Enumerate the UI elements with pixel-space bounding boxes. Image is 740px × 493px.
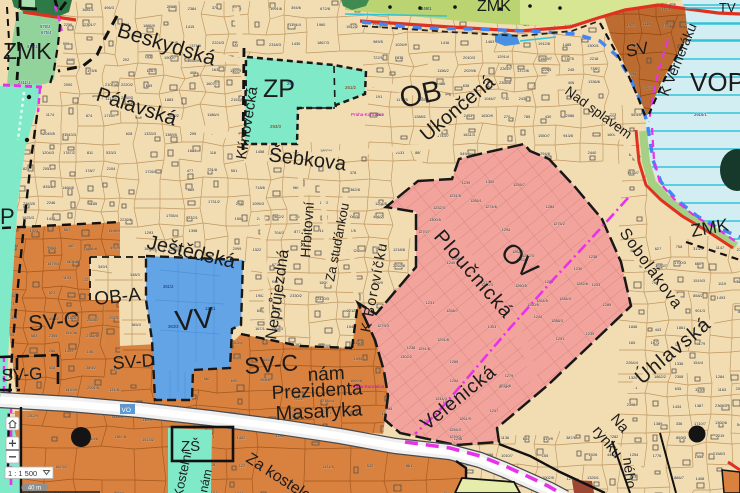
svg-text:1402: 1402 <box>237 435 246 440</box>
svg-text:154/4: 154/4 <box>693 360 704 365</box>
svg-text:ZMK: ZMK <box>477 0 511 15</box>
svg-text:490/9: 490/9 <box>110 245 120 250</box>
svg-text:2311/5: 2311/5 <box>86 333 98 338</box>
svg-text:2051: 2051 <box>43 166 52 171</box>
svg-text:349/1: 349/1 <box>98 264 108 269</box>
svg-text:2252/8: 2252/8 <box>393 263 405 268</box>
svg-text:1886/8: 1886/8 <box>85 246 97 251</box>
svg-text:2013/3: 2013/3 <box>109 315 121 320</box>
svg-text:293/3: 293/3 <box>270 124 282 129</box>
svg-text:2264/4: 2264/4 <box>626 360 639 365</box>
svg-text:1416: 1416 <box>441 40 450 45</box>
svg-text:191: 191 <box>376 94 383 99</box>
svg-text:1398: 1398 <box>189 228 198 233</box>
svg-text:1251/8: 1251/8 <box>418 347 430 351</box>
svg-text:1071: 1071 <box>651 340 660 345</box>
svg-text:1479/4: 1479/4 <box>47 261 60 266</box>
svg-text:835/5: 835/5 <box>43 184 53 189</box>
svg-text:718/6: 718/6 <box>255 185 265 190</box>
svg-text:163: 163 <box>212 67 219 72</box>
svg-text:1265: 1265 <box>450 360 458 364</box>
svg-text:1776: 1776 <box>653 453 662 458</box>
svg-text:562: 562 <box>204 376 211 381</box>
svg-text:SV: SV <box>624 38 650 61</box>
svg-text:2318/3: 2318/3 <box>269 42 281 47</box>
svg-text:1485: 1485 <box>563 42 572 47</box>
svg-text:2091/5: 2091/5 <box>87 385 99 390</box>
svg-text:Masaryka: Masaryka <box>275 398 364 425</box>
svg-text:2384: 2384 <box>188 6 197 11</box>
svg-text:1239/3: 1239/3 <box>449 435 461 439</box>
svg-text:111/5: 111/5 <box>642 21 651 26</box>
svg-text:711: 711 <box>503 96 509 101</box>
svg-text:519/9: 519/9 <box>543 436 553 441</box>
svg-text:989/5: 989/5 <box>373 39 383 44</box>
svg-text:1239: 1239 <box>586 332 594 336</box>
svg-text:178/7: 178/7 <box>85 168 95 173</box>
svg-text:245: 245 <box>568 67 575 72</box>
svg-text:1513/2: 1513/2 <box>142 437 154 442</box>
svg-text:382/8: 382/8 <box>350 187 360 192</box>
svg-text:1244: 1244 <box>534 315 542 319</box>
svg-text:758: 758 <box>676 244 683 249</box>
svg-text:1302/6: 1302/6 <box>715 420 727 425</box>
svg-text:628: 628 <box>126 131 133 136</box>
svg-text:2301/7: 2301/7 <box>84 22 96 27</box>
svg-text:1430: 1430 <box>292 41 301 46</box>
svg-text:1543/3: 1543/3 <box>64 132 76 137</box>
svg-text:1231: 1231 <box>426 301 434 305</box>
svg-text:272/6: 272/6 <box>662 23 672 28</box>
svg-text:2219: 2219 <box>716 433 725 438</box>
svg-text:1598/9: 1598/9 <box>108 228 120 233</box>
svg-text:858/2: 858/2 <box>693 293 703 298</box>
svg-text:2330/2: 2330/2 <box>290 293 302 298</box>
svg-text:1026: 1026 <box>589 452 598 457</box>
svg-text:1922: 1922 <box>627 22 636 27</box>
svg-text:811: 811 <box>87 150 93 155</box>
svg-text:1519/3: 1519/3 <box>693 278 705 283</box>
svg-text:1787/2: 1787/2 <box>63 150 75 155</box>
svg-text:193: 193 <box>145 54 152 59</box>
svg-text:859/3: 859/3 <box>676 435 686 440</box>
svg-text:394/6: 394/6 <box>291 5 301 10</box>
svg-text:SV-C: SV-C <box>27 307 80 336</box>
svg-text:336: 336 <box>676 421 683 426</box>
svg-text:704/3: 704/3 <box>274 230 284 235</box>
svg-text:1405/8: 1405/8 <box>66 259 78 264</box>
svg-text:1333/3: 1333/3 <box>144 131 156 136</box>
svg-text:1435/7: 1435/7 <box>627 170 639 175</box>
svg-text:666: 666 <box>67 57 74 62</box>
svg-text:672/8: 672/8 <box>320 6 330 11</box>
svg-text:1204/5: 1204/5 <box>375 201 387 206</box>
svg-text:1270/7: 1270/7 <box>418 230 430 234</box>
svg-text:1387: 1387 <box>695 403 704 408</box>
svg-text:1255/3: 1255/3 <box>449 428 461 432</box>
svg-text:496/3: 496/3 <box>104 5 114 10</box>
svg-text:690: 690 <box>231 378 238 383</box>
svg-text:1434: 1434 <box>47 216 56 221</box>
svg-text:1631/3: 1631/3 <box>463 132 475 137</box>
svg-text:1294: 1294 <box>502 228 510 232</box>
svg-text:1372/6: 1372/6 <box>517 68 529 73</box>
svg-text:477: 477 <box>187 168 194 173</box>
svg-text:1275/2: 1275/2 <box>553 222 565 226</box>
svg-text:2029/6: 2029/6 <box>464 68 476 73</box>
svg-text:1710/7: 1710/7 <box>694 421 706 426</box>
svg-text:131/8: 131/8 <box>109 387 119 392</box>
svg-text:TV: TV <box>719 0 736 15</box>
svg-text:1867/3: 1867/3 <box>317 40 329 45</box>
svg-text:1260/5: 1260/5 <box>515 284 527 288</box>
svg-text:1174: 1174 <box>46 112 55 117</box>
svg-text:1409: 1409 <box>65 348 74 353</box>
svg-text:1119: 1119 <box>718 281 726 286</box>
svg-text:295: 295 <box>190 131 197 136</box>
svg-text:1247: 1247 <box>490 409 498 413</box>
svg-text:165: 165 <box>629 340 636 345</box>
svg-text:1300/5: 1300/5 <box>429 218 441 222</box>
svg-text:40 m: 40 m <box>28 486 41 492</box>
svg-text:1960: 1960 <box>317 22 326 27</box>
svg-text:2411/1: 2411/1 <box>18 80 31 85</box>
svg-text:610: 610 <box>257 308 264 313</box>
svg-text:533/3: 533/3 <box>106 150 116 155</box>
svg-text:1387/8: 1387/8 <box>114 434 126 439</box>
svg-text:1095/3: 1095/3 <box>252 201 264 206</box>
svg-text:794/8: 794/8 <box>540 151 550 156</box>
svg-text:348/3: 348/3 <box>130 272 140 277</box>
svg-text:430: 430 <box>545 114 552 119</box>
svg-text:1285/1: 1285/1 <box>470 199 482 203</box>
svg-text:2308: 2308 <box>675 374 684 379</box>
svg-text:1506: 1506 <box>235 216 244 221</box>
svg-text:1689/7: 1689/7 <box>540 56 552 61</box>
svg-text:1274/6: 1274/6 <box>485 205 497 209</box>
svg-text:1254: 1254 <box>450 379 458 383</box>
svg-text:1284: 1284 <box>546 205 554 209</box>
svg-text:ZP: ZP <box>263 75 295 103</box>
svg-text:1303: 1303 <box>488 325 496 329</box>
svg-text:644: 644 <box>523 436 530 441</box>
svg-text:2224/3: 2224/3 <box>212 40 224 45</box>
svg-text:1325/1: 1325/1 <box>587 475 599 480</box>
svg-text:562/2: 562/2 <box>274 214 284 219</box>
svg-text:1630/9: 1630/9 <box>481 113 493 118</box>
svg-text:1284/4: 1284/4 <box>559 297 571 301</box>
svg-text:1288/1: 1288/1 <box>414 114 426 119</box>
svg-text:1512/2: 1512/2 <box>346 24 358 29</box>
svg-text:1924: 1924 <box>30 228 39 233</box>
svg-text:1595: 1595 <box>354 356 363 361</box>
svg-text:532: 532 <box>367 463 374 468</box>
svg-text:406/2: 406/2 <box>373 214 383 219</box>
svg-text:2158/3: 2158/3 <box>713 451 725 456</box>
svg-text:1238: 1238 <box>407 346 415 350</box>
svg-text:551: 551 <box>231 168 238 173</box>
svg-text:1410/9: 1410/9 <box>65 387 77 392</box>
svg-text:2430/3: 2430/3 <box>317 296 329 301</box>
svg-text:557: 557 <box>64 227 71 232</box>
svg-text:SV-C: SV-C <box>244 349 299 379</box>
svg-text:554/8: 554/8 <box>353 340 363 345</box>
svg-text:1194/4: 1194/4 <box>289 22 301 27</box>
svg-text:1136: 1136 <box>501 435 509 440</box>
svg-text:1258/7: 1258/7 <box>446 309 458 313</box>
svg-text:249/1: 249/1 <box>421 6 432 11</box>
svg-text:1846: 1846 <box>629 324 638 329</box>
svg-text:1523/2: 1523/2 <box>55 464 67 469</box>
svg-text:1681/1: 1681/1 <box>82 7 94 12</box>
svg-text:707/7: 707/7 <box>644 85 654 90</box>
svg-text:1726/5: 1726/5 <box>145 169 157 174</box>
svg-text:2268: 2268 <box>167 4 176 9</box>
svg-text:1255/7: 1255/7 <box>513 183 525 187</box>
svg-text:2025/7: 2025/7 <box>87 317 99 322</box>
svg-text:Praha-Kunratice: Praha-Kunratice <box>351 384 385 389</box>
svg-text:365/4: 365/4 <box>131 322 142 327</box>
svg-text:K Libuši: K Libuši <box>120 403 135 409</box>
svg-text:1597/5: 1597/5 <box>230 68 242 73</box>
svg-text:232/1: 232/1 <box>188 215 198 220</box>
svg-text:VV: VV <box>173 302 215 338</box>
svg-text:1279: 1279 <box>505 374 513 378</box>
svg-text:1607/7: 1607/7 <box>206 81 218 86</box>
svg-text:2398: 2398 <box>627 402 636 407</box>
svg-text:1291/8: 1291/8 <box>437 338 449 342</box>
svg-text:1550/7: 1550/7 <box>538 133 550 138</box>
svg-text:1238: 1238 <box>589 255 597 259</box>
svg-text:2000: 2000 <box>64 82 73 87</box>
svg-text:1389: 1389 <box>654 421 663 426</box>
svg-text:1274/6: 1274/6 <box>499 384 511 388</box>
svg-text:1434: 1434 <box>673 404 682 409</box>
svg-text:689: 689 <box>146 83 153 88</box>
svg-text:1284: 1284 <box>716 374 725 379</box>
svg-text:252/9: 252/9 <box>28 413 38 418</box>
svg-text:1289: 1289 <box>603 303 611 307</box>
svg-text:2916/1: 2916/1 <box>694 112 707 117</box>
svg-text:VOP: VOP <box>690 67 740 97</box>
svg-text:865: 865 <box>188 187 195 192</box>
svg-text:2356/8: 2356/8 <box>499 80 511 85</box>
svg-text:2064: 2064 <box>736 386 740 391</box>
svg-text:1700/3: 1700/3 <box>674 260 686 265</box>
svg-text:294: 294 <box>236 201 243 206</box>
svg-text:785: 785 <box>524 114 531 119</box>
svg-text:1239: 1239 <box>462 181 470 185</box>
svg-text:1288/3: 1288/3 <box>551 319 563 323</box>
svg-text:627: 627 <box>655 246 662 251</box>
svg-text:549/5: 549/5 <box>460 151 470 156</box>
svg-text:2261/7: 2261/7 <box>500 66 512 71</box>
svg-text:1230: 1230 <box>574 267 582 271</box>
svg-text:361/2: 361/2 <box>163 284 174 289</box>
svg-text:969: 969 <box>293 185 300 190</box>
svg-text:2220/2: 2220/2 <box>121 82 133 87</box>
svg-text:1291/4: 1291/4 <box>497 54 510 59</box>
svg-text:1883: 1883 <box>165 97 174 102</box>
svg-text:387/6: 387/6 <box>566 435 576 440</box>
svg-text:1302/2: 1302/2 <box>400 355 412 359</box>
svg-text:1554: 1554 <box>695 454 704 459</box>
svg-text:1463: 1463 <box>486 39 495 44</box>
svg-text:261/2: 261/2 <box>345 85 357 90</box>
svg-text:270: 270 <box>504 114 511 119</box>
svg-text:1156/2: 1156/2 <box>437 68 449 73</box>
svg-text:1300/1: 1300/1 <box>587 43 599 48</box>
svg-text:2246: 2246 <box>47 200 56 205</box>
svg-text:2086: 2086 <box>566 113 575 118</box>
svg-text:717/5: 717/5 <box>564 56 574 61</box>
svg-text:1267: 1267 <box>147 68 156 73</box>
svg-text:1300: 1300 <box>486 180 494 184</box>
svg-text:721/8: 721/8 <box>207 167 217 172</box>
svg-text:1231/5: 1231/5 <box>449 194 461 198</box>
svg-text:675/4: 675/4 <box>41 30 52 35</box>
svg-text:1716/7: 1716/7 <box>104 113 116 118</box>
svg-text:106: 106 <box>87 349 94 354</box>
svg-text:901/3: 901/3 <box>695 308 705 313</box>
svg-text:1261/9: 1261/9 <box>459 417 471 421</box>
svg-text:2010/3: 2010/3 <box>463 55 475 60</box>
svg-text:1683: 1683 <box>188 148 197 153</box>
svg-text:1091/6: 1091/6 <box>270 6 282 11</box>
svg-text:SV-D: SV-D <box>112 350 155 373</box>
svg-text:2256: 2256 <box>64 22 73 27</box>
svg-text:1755/4: 1755/4 <box>166 213 179 218</box>
svg-text:650: 650 <box>695 261 702 266</box>
svg-text:886/7: 886/7 <box>674 475 684 480</box>
svg-text:998/1: 998/1 <box>47 245 57 250</box>
svg-text:1912/8: 1912/8 <box>538 41 550 46</box>
svg-text:1466/5: 1466/5 <box>62 185 74 190</box>
svg-text:319/9: 319/9 <box>695 387 705 392</box>
svg-text:442: 442 <box>68 243 75 248</box>
svg-text:1131/5: 1131/5 <box>322 464 334 469</box>
svg-text:1 : 1 500: 1 : 1 500 <box>8 469 37 478</box>
svg-text:2440: 2440 <box>588 150 597 155</box>
svg-text:175/6: 175/6 <box>87 68 97 73</box>
svg-text:738/7: 738/7 <box>590 66 600 71</box>
svg-text:1291: 1291 <box>556 337 564 341</box>
svg-text:408: 408 <box>190 70 197 75</box>
svg-text:1336/6: 1336/6 <box>588 79 600 84</box>
svg-text:722/5: 722/5 <box>373 55 383 60</box>
svg-text:1026/9: 1026/9 <box>395 42 407 47</box>
svg-text:Praha-Kunratice: Praha-Kunratice <box>351 112 385 117</box>
svg-text:389/2: 389/2 <box>86 365 96 370</box>
svg-text:563/5: 563/5 <box>631 112 641 117</box>
svg-text:2232/6: 2232/6 <box>120 217 132 222</box>
svg-text:ZMK: ZMK <box>3 38 52 64</box>
svg-text:1282/6: 1282/6 <box>576 282 588 286</box>
svg-text:1279/3: 1279/3 <box>377 324 389 328</box>
svg-text:1186/4: 1186/4 <box>207 112 219 117</box>
svg-text:1193: 1193 <box>63 275 71 280</box>
svg-text:2218: 2218 <box>590 56 599 61</box>
svg-text:1415: 1415 <box>186 24 195 29</box>
svg-text:2383/5: 2383/5 <box>23 201 35 206</box>
svg-text:1293: 1293 <box>592 283 600 287</box>
svg-text:2045/5: 2045/5 <box>43 131 55 136</box>
svg-text:1408: 1408 <box>696 476 705 481</box>
svg-text:2436: 2436 <box>519 96 528 101</box>
svg-text:1731/2: 1731/2 <box>208 199 220 204</box>
svg-text:2104: 2104 <box>107 166 116 171</box>
svg-text:1458: 1458 <box>256 149 265 154</box>
svg-text:295: 295 <box>287 81 295 86</box>
svg-text:635: 635 <box>675 386 682 391</box>
svg-text:861: 861 <box>406 463 413 468</box>
svg-text:202: 202 <box>123 57 130 62</box>
svg-text:1185: 1185 <box>89 201 97 206</box>
svg-text:1010/7: 1010/7 <box>501 453 513 458</box>
svg-text:2365/3: 2365/3 <box>715 403 727 408</box>
svg-text:523: 523 <box>49 290 56 295</box>
svg-text:1147: 1147 <box>716 245 724 250</box>
svg-text:874: 874 <box>86 113 93 118</box>
svg-text:155: 155 <box>542 453 549 458</box>
svg-text:1522: 1522 <box>253 247 262 252</box>
svg-text:1902: 1902 <box>256 293 265 298</box>
svg-text:SV-G: SV-G <box>1 364 43 385</box>
svg-text:1232/3: 1232/3 <box>433 206 445 210</box>
svg-text:2212: 2212 <box>347 308 356 313</box>
svg-text:378: 378 <box>350 170 357 175</box>
svg-text:1163: 1163 <box>718 387 726 392</box>
svg-text:1204/3: 1204/3 <box>42 150 54 155</box>
svg-text:1218/8: 1218/8 <box>393 247 405 252</box>
svg-text:443: 443 <box>655 327 662 332</box>
svg-text:P: P <box>0 204 15 229</box>
svg-text:1493: 1493 <box>717 295 726 300</box>
svg-text:943/8: 943/8 <box>563 133 573 138</box>
svg-text:365/3: 365/3 <box>736 279 740 284</box>
svg-text:675/2: 675/2 <box>40 24 51 29</box>
svg-text:1389/5: 1389/5 <box>165 132 177 137</box>
svg-text:990: 990 <box>63 41 70 46</box>
svg-text:376: 376 <box>212 5 219 10</box>
svg-text:1814: 1814 <box>395 55 404 60</box>
svg-text:116: 116 <box>210 150 216 155</box>
svg-text:534: 534 <box>49 365 56 370</box>
svg-text:266: 266 <box>49 348 56 353</box>
